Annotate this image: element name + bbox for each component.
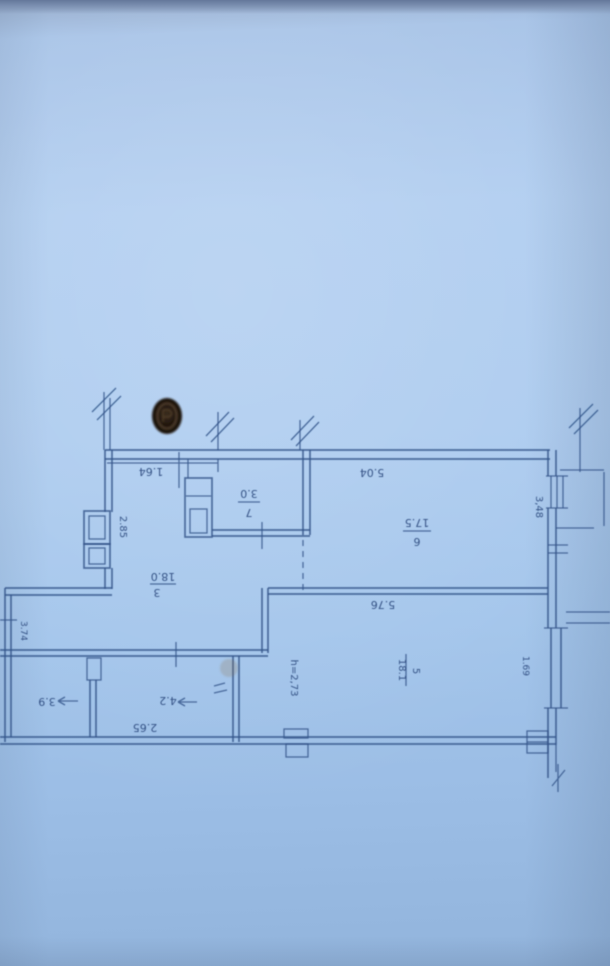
room5-number: 5 <box>410 668 421 674</box>
dim-room5-top: 5.76 <box>371 598 396 611</box>
radiator-box <box>527 731 548 753</box>
dim-top-main: 5.04 <box>360 466 385 479</box>
hall-area: 18.0 <box>151 570 176 583</box>
left-shaft-window <box>84 511 110 568</box>
floor-plan-drawing: 1.64 5.04 5.76 2.65 2.85 3,48 1.69 3.74 … <box>0 0 610 966</box>
right-wall <box>546 450 610 745</box>
top-wall <box>105 450 550 459</box>
balcony-window <box>544 628 568 708</box>
dimension-texts: 1.64 5.04 5.76 2.65 2.85 3,48 1.69 3.74 <box>18 465 544 734</box>
floor-plan-photo: 1.64 5.04 5.76 2.65 2.85 3,48 1.69 3.74 … <box>0 0 610 966</box>
room5-area: 18.1 <box>396 659 407 681</box>
room1-area: 3.9 <box>38 695 56 708</box>
room6-area: 17.5 <box>405 516 430 529</box>
room6-number: 6 <box>414 535 421 548</box>
room7-walls <box>185 450 310 590</box>
room7-number: 7 <box>246 506 253 519</box>
room7-area: 3.0 <box>240 487 258 500</box>
photo-bottom-shade <box>0 936 610 966</box>
paper-stain <box>220 659 238 677</box>
dim-shaft-left: 2.85 <box>117 516 128 538</box>
stamp <box>152 398 182 434</box>
dim-top-left: 1.64 <box>139 465 164 478</box>
hall-number: 3 <box>154 586 161 599</box>
dim-right-upper: 3,48 <box>533 496 544 518</box>
right-lower-stub <box>548 742 565 792</box>
ceiling-height-note: h=2,73 <box>288 660 299 697</box>
room4-area: 4.2 <box>159 694 177 707</box>
bottom-wall <box>0 729 556 757</box>
dim-left-lower: 3.74 <box>18 621 28 641</box>
dim-bottom-left: 2.65 <box>133 721 158 734</box>
dim-room5-right: 1.69 <box>520 656 530 676</box>
room5-walls <box>262 588 548 653</box>
